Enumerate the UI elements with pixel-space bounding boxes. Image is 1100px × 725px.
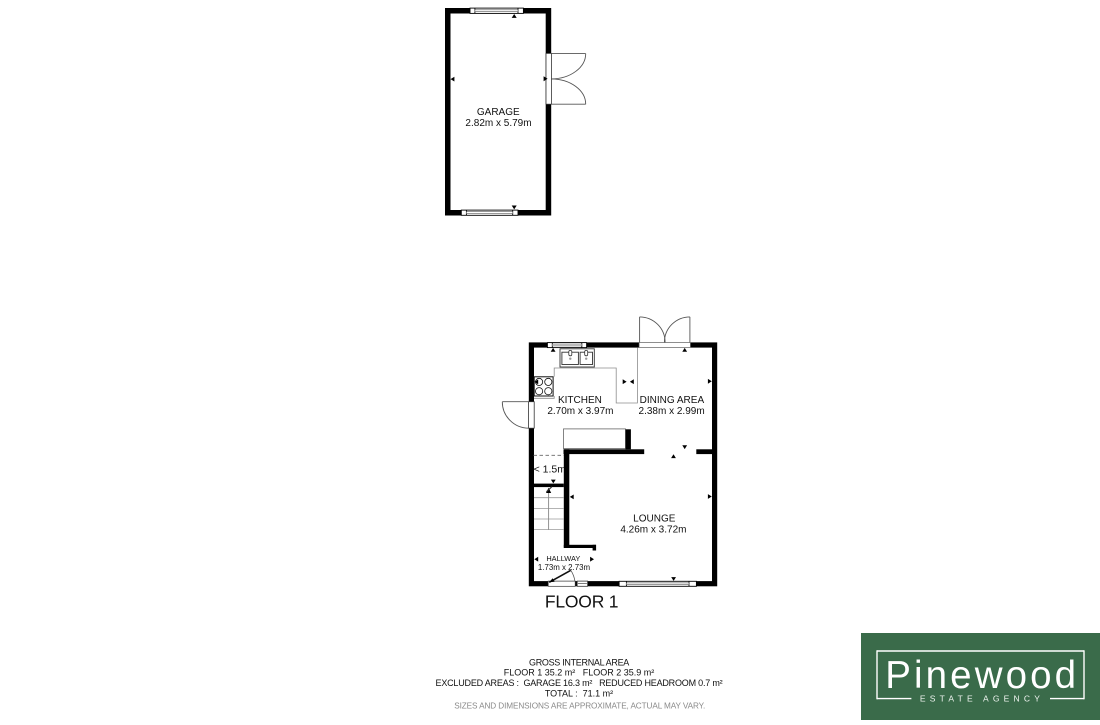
svg-text:< 1.5m: < 1.5m bbox=[534, 464, 567, 476]
svg-text:2.70m x 3.97m: 2.70m x 3.97m bbox=[547, 406, 613, 417]
svg-text:2.38m x 2.99m: 2.38m x 2.99m bbox=[639, 406, 705, 417]
svg-text:KITCHEN: KITCHEN bbox=[558, 395, 602, 406]
svg-text:GARAGE: GARAGE bbox=[477, 107, 520, 118]
svg-text:Pinewood: Pinewood bbox=[885, 654, 1079, 697]
svg-text:4.26m x 3.72m: 4.26m x 3.72m bbox=[620, 524, 686, 535]
svg-text:TOTAL : 71.1 m²: TOTAL : 71.1 m² bbox=[545, 689, 613, 699]
svg-text:SIZES AND DIMENSIONS ARE APPRO: SIZES AND DIMENSIONS ARE APPROXIMATE, AC… bbox=[454, 701, 705, 710]
svg-text:2.82m x 5.79m: 2.82m x 5.79m bbox=[465, 118, 531, 129]
svg-text:ESTATE AGENCY: ESTATE AGENCY bbox=[920, 693, 1044, 703]
svg-text:EXCLUDED AREAS : GARAGE 16.3: EXCLUDED AREAS : GARAGE 16.3 m² REDUCED … bbox=[436, 678, 723, 688]
svg-text:FLOOR 1: FLOOR 1 bbox=[545, 592, 618, 612]
svg-text:DINING AREA: DINING AREA bbox=[640, 395, 705, 406]
svg-text:FLOOR 1 35.2 m² FLOOR 2 35.9: FLOOR 1 35.2 m² FLOOR 2 35.9 m² bbox=[504, 667, 655, 677]
svg-text:GROSS INTERNAL AREA: GROSS INTERNAL AREA bbox=[529, 658, 629, 668]
svg-text:LOUNGE: LOUNGE bbox=[633, 514, 676, 525]
svg-text:1.73m x 2.73m: 1.73m x 2.73m bbox=[538, 563, 591, 572]
